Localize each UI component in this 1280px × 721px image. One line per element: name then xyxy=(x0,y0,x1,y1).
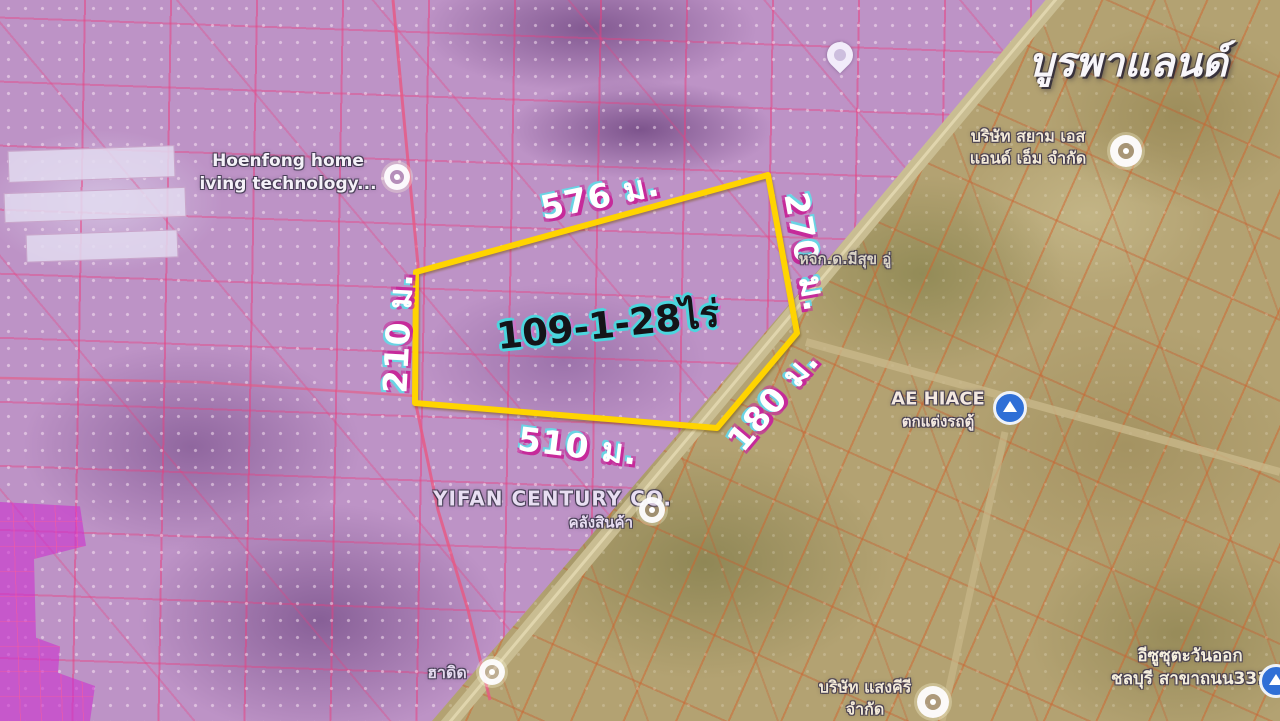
poi-label-meesuk: หจก.ด.มีสุข อู่ xyxy=(799,249,891,269)
poi-label-line: YIFAN CENTURY CO. xyxy=(433,485,633,512)
poi-label-siam-sm: บริษัท สยาม เอส แอนด์ เอ็ม จำกัด xyxy=(970,125,1086,168)
poi-label-line: แอนด์ เอ็ม จำกัด xyxy=(970,147,1086,169)
poi-label-line: คลังสินค้า xyxy=(433,512,633,532)
warehouse-building xyxy=(26,229,179,262)
watermark-brand: บูรพาแลนด์ xyxy=(1028,30,1227,94)
poi-label-line: อีซูซุตะวันออก xyxy=(1111,645,1269,668)
side-road xyxy=(942,432,1005,721)
side-road xyxy=(806,342,1280,472)
poi-label-line: ตกแต่งรถตู้ xyxy=(891,412,985,432)
poi-label-line: ชลบุรี สาขาถนน331 xyxy=(1111,668,1269,691)
poi-label-line: บริษัท แสงคีรี xyxy=(819,676,912,698)
poi-label-line: บริษัท สยาม เอส xyxy=(970,125,1086,147)
poi-label-hadid: ฮาดิด xyxy=(427,662,467,684)
place-pin-icon xyxy=(384,164,410,190)
poi-label-hoenfong: Hoenfong home iving technology... xyxy=(199,150,376,196)
map-canvas: 576 ม. 270 ม. 210 ม. 510 ม. 180 ม. 109-1… xyxy=(0,0,1280,721)
poi-label-line: Hoenfong home xyxy=(199,150,376,173)
poi-label-line: จำกัด xyxy=(819,698,912,720)
poi-label-line: iving technology... xyxy=(199,173,376,196)
purple-zone-overlay xyxy=(0,0,1280,721)
poi-label-ae-hiace: AE HIACE ตกแต่งรถตู้ xyxy=(891,388,985,433)
dimension-label-left: 210 ม. xyxy=(368,271,427,394)
poi-label-yifan: YIFAN CENTURY CO. คลังสินค้า xyxy=(433,485,633,532)
poi-label-isuzu: อีซูซุตะวันออก ชลบุรี สาขาถนน331 xyxy=(1111,645,1269,691)
auto-shop-icon xyxy=(993,391,1027,425)
place-pin-icon xyxy=(1110,135,1142,167)
dealership-icon xyxy=(1259,664,1280,698)
poi-label-line: AE HIACE xyxy=(891,388,985,412)
poi-label-saengkhiri: บริษัท แสงคีรี จำกัด xyxy=(819,676,912,719)
place-pin-icon xyxy=(479,659,505,685)
warehouse-building xyxy=(7,145,175,183)
place-pin-icon xyxy=(639,497,665,523)
place-pin-icon xyxy=(917,686,949,718)
warehouse-building xyxy=(4,187,187,223)
